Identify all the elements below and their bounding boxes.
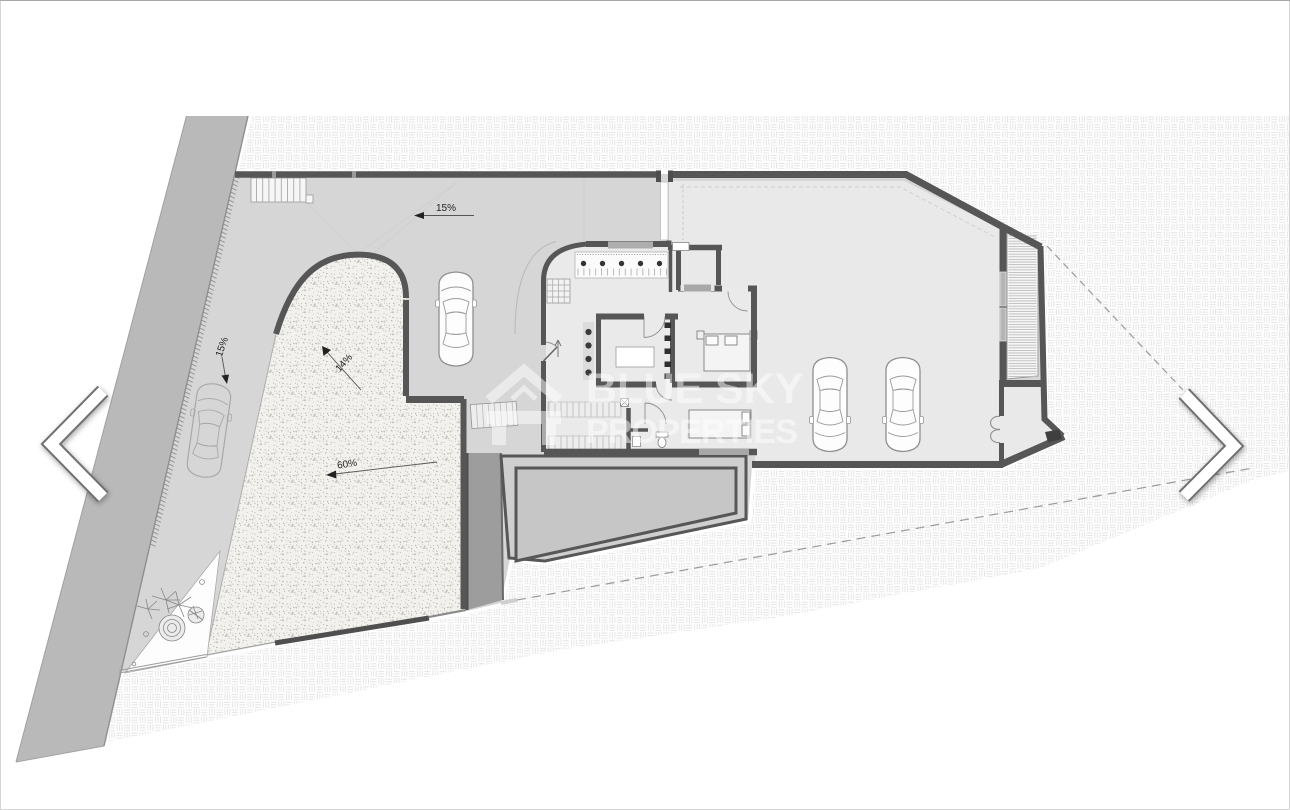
svg-text:PROPERTIES: PROPERTIES	[586, 413, 797, 451]
svg-text:BLUE SKY: BLUE SKY	[586, 365, 803, 413]
svg-text:15%: 15%	[436, 203, 456, 214]
